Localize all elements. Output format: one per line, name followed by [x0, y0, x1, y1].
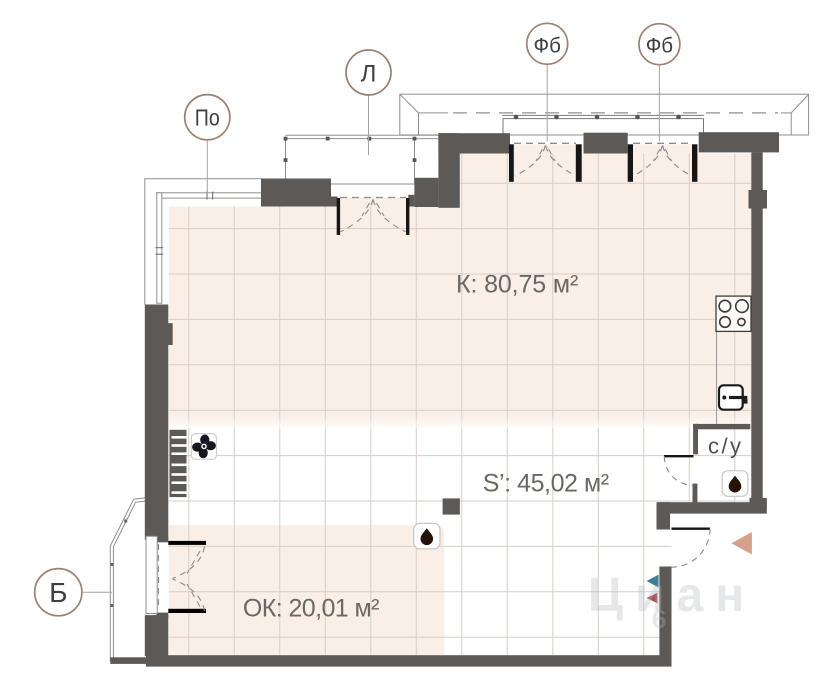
svg-text:Л: Л — [361, 61, 377, 88]
svg-text:Циан: Циан — [588, 569, 756, 622]
svg-text:Б: Б — [49, 577, 67, 608]
svg-text:S’: 45,02 м²: S’: 45,02 м² — [483, 469, 609, 497]
svg-text:Фб: Фб — [646, 35, 673, 58]
svg-text:ОК: 20,01 м²: ОК: 20,01 м² — [243, 594, 380, 622]
svg-text:6: 6 — [652, 604, 666, 634]
svg-text:Фб: Фб — [534, 34, 561, 57]
svg-text:с/у: с/у — [708, 434, 741, 459]
svg-text:К: 80,75 м²: К: 80,75 м² — [456, 271, 578, 299]
svg-text:По: По — [195, 105, 220, 131]
